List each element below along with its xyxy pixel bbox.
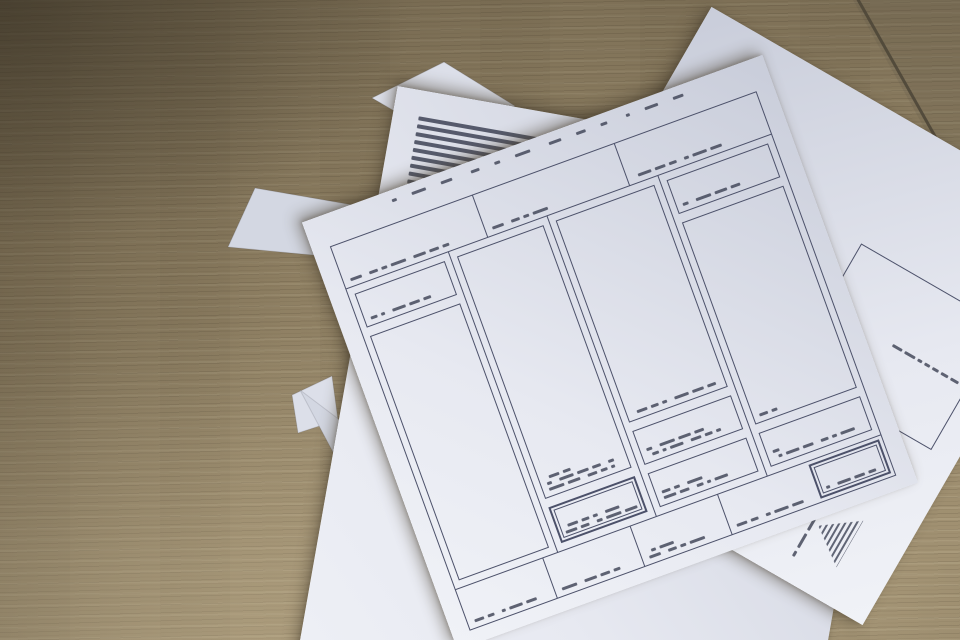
form-body bbox=[346, 135, 880, 589]
desk-photo bbox=[0, 0, 960, 640]
